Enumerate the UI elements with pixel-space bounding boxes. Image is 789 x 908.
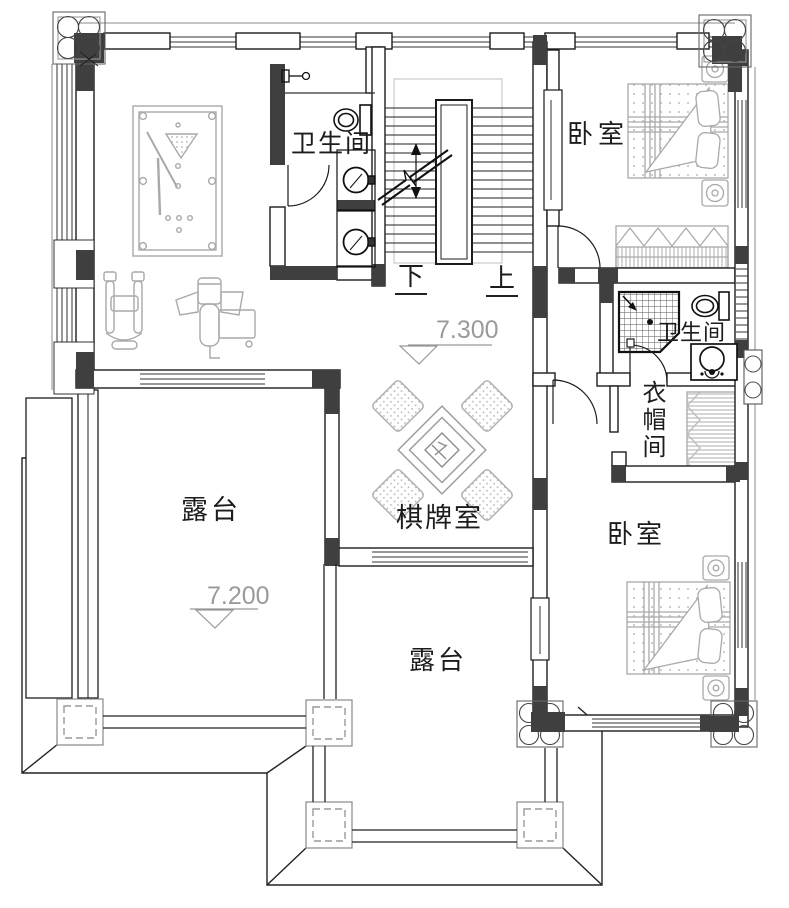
room-label-bedroom-top: 卧室	[567, 120, 629, 149]
exterior-column-icon	[744, 350, 762, 404]
toilet-icon	[692, 292, 729, 320]
room-label-bathroom-top: 卫生间	[291, 131, 372, 159]
vent-icon	[282, 70, 310, 82]
stair-label-up: 上	[486, 264, 518, 297]
floor-plan: 卫生间 卧室 下 上 7.300 卫生间 衣帽间 露台 棋牌室 卧室 7.200…	[0, 0, 789, 908]
stair-label-down: 下	[395, 262, 427, 295]
room-label-bathroom-right: 卫生间	[657, 321, 726, 345]
bed-icon	[628, 84, 728, 178]
room-label-terrace-left: 露台	[181, 496, 241, 526]
wardrobe-icon	[687, 392, 737, 478]
mahjong-table-icon	[371, 379, 514, 522]
elevation-label-terrace: 7.200	[207, 583, 270, 611]
bed-icon	[627, 582, 730, 674]
pool-table-icon	[133, 106, 222, 256]
room-label-chess: 棋牌室	[396, 504, 483, 534]
room-label-cloakroom: 衣帽间	[641, 380, 668, 461]
floor-plan-drawing	[0, 0, 789, 908]
gym-equipment-icon	[104, 272, 255, 358]
room-label-bedroom-bottom: 卧室	[607, 520, 665, 549]
terrace-parapet	[26, 390, 98, 698]
sink-icon	[691, 344, 737, 380]
stairs-icon	[378, 79, 533, 264]
elevation-label-hall: 7.300	[436, 317, 499, 345]
wardrobe-icon	[616, 226, 728, 268]
room-label-terrace-bottom: 露台	[409, 646, 467, 675]
